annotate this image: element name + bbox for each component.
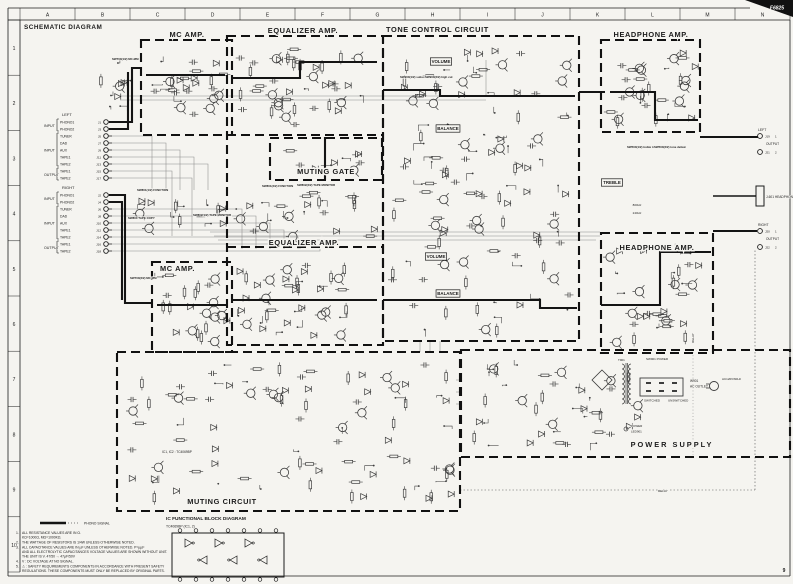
balance-control-label: BALANCE (437, 291, 459, 296)
jack-group-label: INPUT (44, 197, 56, 201)
diode (489, 149, 495, 155)
wire (249, 328, 252, 331)
solder-node (488, 445, 490, 447)
solder-node (303, 211, 305, 213)
ruler-row-number: 9 (13, 488, 16, 494)
resistor (445, 309, 448, 317)
solder-node (177, 424, 179, 426)
channel-label: LEFT (758, 128, 766, 132)
diode (692, 64, 698, 70)
ruler-row-number: 3 (13, 156, 16, 162)
resistor (658, 99, 666, 102)
ic-pin (242, 529, 246, 533)
diode (696, 262, 702, 268)
input-jack (104, 228, 109, 233)
wire (414, 180, 422, 184)
resistor (393, 211, 396, 219)
ruler-row-number: 6 (13, 322, 16, 328)
diode (316, 468, 322, 474)
wire (365, 466, 374, 471)
solder-node (339, 316, 341, 318)
transistor (628, 309, 636, 317)
jack-name: TAPE2 (60, 249, 71, 253)
jack-name: TAPE2 (60, 176, 71, 180)
transistor (461, 141, 469, 149)
diode (661, 308, 667, 314)
wire (217, 335, 220, 338)
block-title-mc-amp-2: MC AMP. (160, 264, 195, 273)
resistor (205, 324, 208, 332)
ruler-column-letter: F (321, 13, 324, 19)
wire (465, 85, 468, 88)
wire (554, 427, 557, 430)
ic-pin (210, 578, 214, 582)
solder-node (424, 329, 426, 331)
resistor (403, 489, 406, 497)
wire (242, 212, 245, 215)
wire (194, 324, 197, 327)
muting-ic-note: IC1, IC2 : TC4069BP (162, 450, 192, 454)
diode (524, 189, 530, 195)
jack-group-label: INPUT (44, 124, 56, 128)
ruler-column-letter: D (211, 13, 215, 19)
resistor (472, 75, 480, 78)
solder-node (341, 427, 343, 429)
jack-ref: J9 (98, 148, 102, 152)
solder-node (507, 145, 509, 147)
ac-outlet-label: AC OUTLET (690, 385, 708, 389)
resistor (595, 431, 603, 434)
resistor (285, 284, 293, 287)
ruler-row-number: 2 (13, 101, 16, 107)
diode (254, 282, 260, 288)
solder-node (183, 205, 185, 207)
diode (282, 387, 288, 393)
resistor (141, 379, 144, 387)
schematic-canvas: ABCDEFGHIJKLMN12345678910SCHEMATIC DIAGR… (0, 0, 793, 584)
transistor (282, 113, 290, 121)
wire (215, 296, 218, 299)
note-number: 1. (16, 531, 19, 535)
diode (115, 94, 121, 100)
wire (151, 222, 154, 225)
jack-pin: 2 (775, 245, 777, 249)
transistor (211, 275, 219, 283)
solder-node (119, 105, 121, 107)
diode (370, 471, 376, 477)
solder-node (443, 69, 445, 71)
diode (464, 49, 470, 55)
wire (569, 59, 572, 62)
transistor (334, 274, 342, 282)
wire (174, 96, 181, 101)
wire (268, 213, 271, 220)
wire (540, 159, 543, 166)
wire (613, 374, 616, 377)
wire (249, 318, 252, 321)
wire (215, 383, 223, 384)
block-title-muting-gate: MUTING GATE (297, 167, 355, 176)
solder-node (595, 442, 597, 444)
wire (295, 307, 302, 312)
resistor (293, 105, 296, 113)
solder-node (495, 137, 497, 139)
ic-pin (194, 578, 198, 582)
power-switch-label: SW901 POWER (646, 357, 669, 361)
wire (446, 193, 449, 196)
wire (286, 466, 289, 469)
diode (335, 108, 341, 114)
diode (305, 386, 311, 392)
resistor (292, 60, 295, 68)
jack-name: TAPE1 (60, 228, 71, 232)
switch-label: SW801(2/2) FUNCTION (262, 184, 293, 188)
resistor (467, 192, 475, 195)
wire (194, 334, 197, 337)
ruler-column-letter: J (541, 13, 544, 19)
wire (643, 73, 646, 76)
input-jack (104, 141, 109, 146)
transistor (459, 258, 467, 266)
diode (283, 276, 289, 282)
input-jack (104, 120, 109, 125)
output-label: OUTPUT (766, 142, 779, 146)
solder-node (567, 309, 569, 311)
resistor (249, 67, 252, 75)
wire (261, 316, 263, 323)
resistor (473, 434, 476, 442)
solder-node (553, 431, 555, 433)
wire (643, 64, 646, 67)
diode (220, 206, 226, 212)
jack-name: PHONO2 (60, 127, 74, 131)
wire (694, 278, 697, 281)
solder-node (395, 397, 397, 399)
wire (556, 282, 559, 285)
component-labels: VOLUMEBALANCEVOLUMEBALANCETREBLE800Hz240… (112, 57, 686, 454)
solder-node (207, 204, 209, 206)
transistor (358, 409, 366, 417)
wire (641, 295, 644, 298)
resistor (677, 267, 680, 275)
ic-pin (178, 578, 182, 582)
ic-block-diagram: IC FUNCTIONAL BLOCK DIAGRAMTC4069BP (IC1… (166, 516, 284, 581)
solder-node (492, 368, 494, 370)
wire (446, 203, 449, 206)
jack-name: PHONO1 (60, 120, 74, 124)
resistor (290, 48, 298, 51)
diode (129, 475, 135, 481)
ic-pin (258, 578, 262, 582)
jack-name: AUX (60, 221, 68, 225)
solder-node (623, 292, 625, 294)
wire (502, 151, 505, 154)
solder-node (505, 384, 507, 386)
note-line: THE WATTAGE OF RESISTORS IS 1/4W UNLESS … (22, 541, 135, 545)
resistor (340, 53, 343, 61)
note-line: THE UNIT IS V. 47/50 → 47µF/50V (22, 554, 76, 558)
solder-node (557, 185, 559, 187)
solder-node (616, 273, 618, 275)
wire (288, 120, 291, 123)
resistor (192, 470, 200, 473)
input-jack (104, 134, 109, 139)
resistor (490, 250, 498, 253)
solder-node (476, 150, 478, 152)
resistor (541, 393, 544, 401)
resistor (484, 397, 487, 405)
wire (686, 89, 689, 92)
power-led-ref: LED901 (631, 430, 642, 434)
transistor (459, 78, 467, 86)
wire (212, 112, 215, 115)
transistor (259, 222, 267, 230)
wire (178, 418, 184, 425)
wire (512, 262, 521, 266)
switch-label: SW700(2/2) MC·MM (130, 276, 157, 280)
wire (554, 418, 557, 421)
wire (253, 387, 256, 390)
resistor (498, 194, 501, 202)
solder-node (281, 331, 283, 333)
solder-node (270, 219, 272, 221)
ic-diagram-subtitle: TC4069BP (IC1, 2) (166, 525, 195, 529)
solder-node (304, 88, 306, 90)
transistor (383, 373, 391, 381)
wire (291, 210, 294, 213)
relay-label: RELAY (658, 489, 668, 493)
resistor (100, 77, 103, 85)
wire (465, 265, 468, 268)
transistor (145, 224, 153, 232)
wire (507, 186, 516, 190)
diode (505, 200, 511, 206)
solder-node (516, 364, 518, 366)
diode (371, 226, 377, 232)
input-jack (104, 127, 109, 132)
solder-node (342, 157, 344, 159)
diode (183, 85, 189, 91)
wire (540, 132, 543, 135)
block-border (141, 40, 232, 135)
block-border (117, 352, 460, 511)
wire (343, 328, 346, 331)
wire (452, 473, 455, 476)
jack-name: TAPE1 (60, 242, 71, 246)
wire (681, 104, 684, 107)
note-number: 2. (16, 541, 19, 545)
wire (424, 157, 432, 161)
diode (286, 89, 292, 95)
resistor (653, 313, 661, 316)
ruler-row-number: 8 (13, 432, 16, 438)
diode (402, 381, 408, 387)
solder-node (110, 95, 112, 97)
jack-name: TAPE1 (60, 169, 71, 173)
wire (563, 366, 566, 369)
resistor (476, 305, 479, 313)
jack-ref: J19 (765, 134, 770, 138)
wire (217, 282, 220, 285)
resistor (428, 246, 436, 249)
wire (322, 201, 327, 207)
wire (414, 144, 424, 151)
wire (556, 272, 559, 275)
resistor (445, 373, 448, 381)
resistor (318, 198, 321, 206)
solder-node (214, 382, 216, 384)
resistor (438, 238, 441, 246)
transistor (557, 368, 565, 376)
transistor (548, 420, 556, 428)
ic-pin (194, 529, 198, 533)
output-jack (758, 134, 763, 139)
switch-label: SW800 TAPE COPY (128, 216, 155, 220)
diode (498, 136, 504, 142)
resistor (309, 481, 312, 489)
wire (473, 67, 476, 73)
wire (356, 173, 359, 176)
solder-node (483, 134, 485, 136)
diode (680, 321, 686, 327)
diode (579, 387, 585, 393)
diode (148, 200, 154, 206)
resistor (239, 90, 242, 98)
solder-node (567, 115, 569, 117)
solder-node (246, 381, 248, 383)
signal-path (109, 195, 152, 303)
diode (331, 160, 337, 166)
diode (514, 90, 520, 96)
wire (668, 324, 671, 327)
block-title-headphone-amp-1: HEADPHONE AMP. (614, 30, 689, 39)
wire (612, 251, 615, 254)
ruler-column-letter: L (651, 13, 654, 19)
input-jack (104, 162, 109, 167)
wire (467, 138, 470, 141)
resistor (352, 481, 360, 484)
transistor (534, 135, 542, 143)
solder-node (152, 482, 154, 484)
jack-group-label: OUTPUT (44, 173, 60, 177)
input-jack (104, 242, 109, 247)
channel-label: RIGHT (62, 185, 75, 190)
output-bus (109, 249, 320, 251)
block-border (383, 36, 579, 341)
resistor (351, 493, 354, 501)
resistor (403, 78, 406, 86)
solder-node (506, 185, 508, 187)
block-border (227, 36, 383, 345)
diode (525, 165, 531, 171)
power-led-caption: POWER (631, 424, 643, 428)
wire (465, 75, 468, 78)
wire (262, 203, 269, 207)
headphone-jack-label: J-601 HEADPHONES (766, 195, 793, 199)
resistor (338, 288, 346, 291)
resistor (192, 70, 200, 73)
solder-node (267, 301, 269, 303)
resistor (514, 164, 517, 172)
circuit-texture (100, 48, 702, 505)
solder-node (217, 483, 219, 485)
solder-node (487, 92, 489, 94)
transistor (670, 54, 678, 62)
wire (121, 89, 124, 92)
resistor (200, 334, 203, 342)
transistor (188, 327, 196, 335)
solder-node (427, 124, 429, 126)
resistor (178, 217, 181, 225)
resistor (345, 460, 353, 463)
input-jack (104, 176, 109, 181)
solder-node (287, 217, 289, 219)
diode (448, 491, 454, 497)
resistor (241, 477, 249, 480)
diode (311, 332, 317, 338)
inverter-gate (215, 539, 222, 547)
wire (343, 106, 346, 109)
jack-pin: 1 (775, 229, 777, 233)
transistor (688, 281, 696, 289)
jack-group-label: INPUT (44, 149, 56, 153)
diode (359, 372, 365, 378)
wire (268, 292, 271, 295)
volume-control-label: VOLUME (432, 59, 451, 64)
diode (492, 48, 498, 54)
balance-control-label: BALANCE (437, 126, 459, 131)
diode (527, 440, 533, 446)
wire (446, 268, 449, 271)
input-jack (104, 200, 109, 205)
diode (404, 458, 410, 464)
wire (676, 62, 679, 65)
resistor (556, 442, 564, 445)
resistor (165, 274, 173, 277)
wire (340, 282, 343, 285)
transistor (174, 394, 182, 402)
wire (540, 142, 543, 145)
wire (275, 388, 278, 391)
note-line: V : DC VOLTAGE AT NO SIGNAL. (22, 560, 74, 564)
input-bus (109, 157, 194, 190)
notes-and-legend: PHONO SIGNAL1.ALL RESISTANCE VALUES ARE … (16, 522, 167, 573)
resistor (253, 368, 261, 371)
wire (564, 74, 567, 77)
wire (494, 107, 495, 113)
solder-node (294, 311, 296, 313)
outlet-slot (672, 382, 677, 384)
relay-label: RELAY (691, 333, 695, 343)
jack-ref: J17 (96, 176, 101, 180)
transformer-label: T901 (618, 358, 625, 362)
solder-node (667, 113, 669, 115)
wire (280, 96, 283, 99)
ic-package (172, 533, 284, 577)
block-title-headphone-amp-2: HEADPHONE AMP. (620, 243, 695, 252)
jack-name: TAPE2 (60, 162, 71, 166)
wire (481, 223, 484, 226)
ic-pin (274, 529, 278, 533)
solder-node (445, 480, 447, 482)
resistor (330, 273, 333, 281)
ic-pin (274, 578, 278, 582)
ruler-row-number: 7 (13, 377, 16, 383)
output-jack (758, 245, 763, 250)
wire (563, 376, 566, 379)
diode (443, 398, 449, 404)
solder-node (443, 425, 445, 427)
